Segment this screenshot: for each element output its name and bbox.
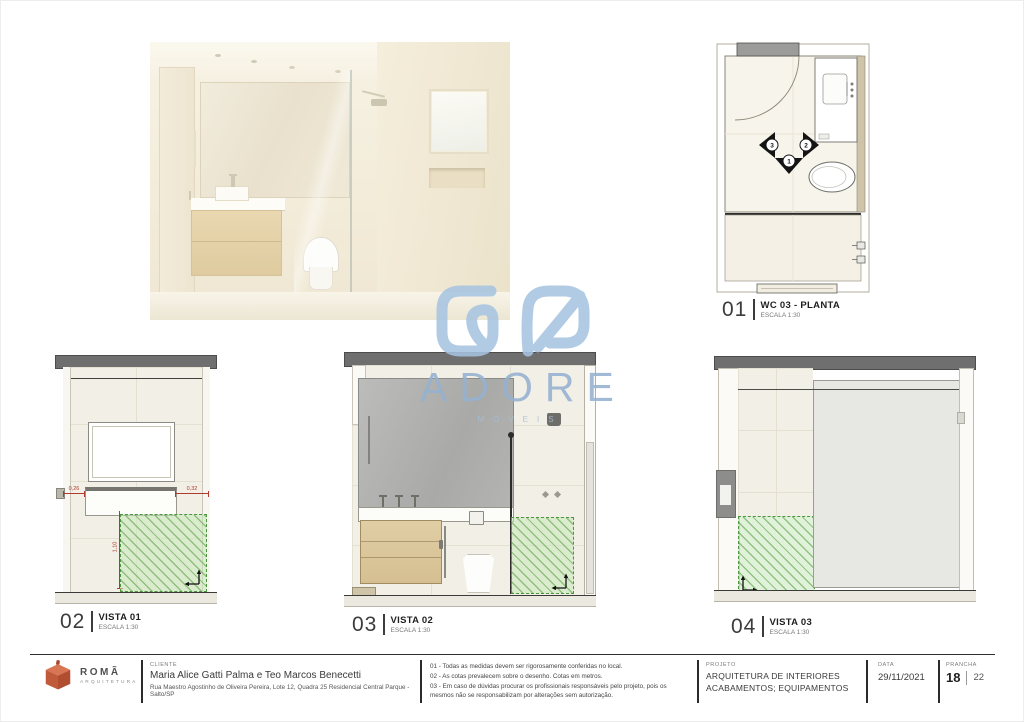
- label-divider: [91, 611, 92, 632]
- v2-flush-plate: [469, 511, 484, 525]
- titleblock-divider: [938, 660, 940, 703]
- v1-floor-slab: [55, 592, 217, 604]
- v1-mirror: [88, 422, 175, 482]
- roma-logo: ROMÃ ARQUITETURA: [44, 659, 137, 692]
- client-address: Rua Maestro Agostinho de Oliveira Pereir…: [150, 684, 412, 698]
- sheet-current: 18: [946, 670, 960, 685]
- marker-1: 1: [787, 159, 791, 166]
- roma-cube-icon: [44, 659, 72, 692]
- project-line: ACABAMENTOS; EQUIPAMENTOS: [706, 682, 856, 694]
- vista-02-drawing: [344, 350, 596, 606]
- hatch-arrow-icon: [183, 568, 201, 586]
- dim-label: 0,32: [175, 486, 209, 492]
- render-shower-head: [371, 99, 386, 106]
- render-vanity-cabinet: [191, 210, 281, 276]
- v3-right-wall: [959, 368, 974, 596]
- render-window: [429, 89, 489, 154]
- v2-shower-head: [547, 413, 561, 426]
- titleblock-top-rule: [30, 654, 995, 655]
- v2-floor-slab: [344, 595, 596, 607]
- v3-wall-fixture: [716, 470, 736, 518]
- hatch-arrow-icon: [550, 572, 568, 590]
- titleblock-date: DATA 29/11/2021: [878, 662, 925, 683]
- v1-dimension-left: 0,26: [63, 493, 85, 494]
- label-vista-01: 02 VISTA 01 ESCALA 1:30: [60, 611, 141, 632]
- vista-01-drawing: 0,26 0,32 1,10: [55, 352, 217, 604]
- v3-tiled-wall: [738, 368, 813, 516]
- plan-sink: [823, 74, 847, 104]
- dim-label: 0,26: [63, 486, 85, 492]
- render-glass-panel: [294, 70, 352, 292]
- v2-faucet: [414, 495, 416, 507]
- marker-3: 3: [770, 143, 774, 150]
- v2-faucet: [398, 495, 400, 507]
- view-title: WC 03 - PLANTA: [761, 300, 841, 311]
- view-scale: ESCALA 1:30: [391, 627, 434, 634]
- render-floor: [150, 292, 510, 320]
- sheet-separator: [966, 671, 967, 685]
- render-niche: [429, 168, 485, 187]
- dim-label: 1,10: [112, 541, 118, 552]
- titleblock-client: CLIENTE Maria Alice Gatti Palma e Teo Ma…: [150, 662, 412, 698]
- v2-mirror: [358, 378, 514, 509]
- label-divider: [762, 616, 763, 637]
- titleblock-divider: [141, 660, 143, 703]
- view-number: 01: [722, 299, 747, 320]
- v2-hygienic-shower: [439, 540, 443, 549]
- v1-ceiling-line: [69, 378, 203, 379]
- v3-ceiling-line: [738, 389, 966, 390]
- label-plan: 01 WC 03 - PLANTA ESCALA 1:30: [722, 299, 840, 320]
- v2-faucet: [382, 495, 384, 507]
- floor-plan-wc03: 1 2 3: [711, 40, 875, 298]
- marker-2: 2: [804, 143, 808, 150]
- project-line: ARQUITETURA DE INTERIORES: [706, 670, 856, 682]
- v3-glass-panel: [813, 380, 961, 588]
- label-vista-02: 03 VISTA 02 ESCALA 1:30: [352, 614, 433, 635]
- client-label: CLIENTE: [150, 662, 412, 668]
- titleblock-divider: [866, 660, 868, 703]
- label-divider: [753, 299, 754, 320]
- titleblock-divider: [697, 660, 699, 703]
- vista-03-drawing: [714, 352, 976, 604]
- v2-towel-bar: [368, 416, 370, 464]
- render-door: [159, 67, 195, 305]
- titleblock-notes: 01 - Todas as medidas devem ser rigorosa…: [430, 662, 688, 701]
- v1-left-wall: [63, 367, 71, 592]
- view-title: VISTA 03: [770, 617, 813, 628]
- view-scale: ESCALA 1:30: [99, 624, 142, 631]
- v2-vanity-cabinet: [360, 520, 442, 584]
- view-number: 02: [60, 611, 85, 632]
- view-scale: ESCALA 1:30: [770, 629, 813, 636]
- render-faucet: [231, 174, 235, 187]
- v2-hygienic-shower-hose: [444, 526, 446, 578]
- render-towel-bar: [194, 131, 196, 167]
- drawing-sheet: 1 2 3 0,26 0,32 1,10: [0, 0, 1024, 722]
- plan-right-wall: [857, 56, 865, 212]
- project-label: PROJETO: [706, 662, 856, 668]
- note-line: 03 - Em caso de dúvidas procurar os prof…: [430, 682, 688, 702]
- date-value: 29/11/2021: [878, 672, 925, 683]
- view-scale: ESCALA 1:30: [761, 312, 841, 319]
- plan-door-header: [737, 43, 799, 56]
- sheet-label: PRANCHA: [946, 662, 984, 668]
- titleblock-project: PROJETO ARQUITETURA DE INTERIORES ACABAM…: [706, 662, 856, 695]
- client-name: Maria Alice Gatti Palma e Teo Marcos Ben…: [150, 670, 412, 681]
- v1-dimension-right: 0,32: [175, 493, 209, 494]
- label-divider: [383, 614, 384, 635]
- titleblock-sheet-number: PRANCHA 18 22: [946, 662, 984, 685]
- view-number: 03: [352, 614, 377, 635]
- view-title: VISTA 01: [99, 612, 142, 623]
- v2-door-leaf: [586, 442, 594, 594]
- view-number: 04: [731, 616, 756, 637]
- note-line: 02 - As cotas prevalecem sobre o desenho…: [430, 672, 688, 682]
- v2-toilet: [462, 554, 495, 593]
- logo-subtitle: ARQUITETURA: [80, 680, 137, 685]
- view-title: VISTA 02: [391, 615, 434, 626]
- label-vista-03: 04 VISTA 03 ESCALA 1:30: [731, 616, 812, 637]
- note-line: 01 - Todas as medidas devem ser rigorosa…: [430, 662, 688, 672]
- render-sink: [215, 186, 249, 201]
- v3-wall-notch: [957, 412, 965, 424]
- v1-shelf: [85, 487, 177, 516]
- titleblock-divider: [420, 660, 422, 703]
- render-3d-bathroom: [150, 42, 510, 320]
- sheet-total: 22: [973, 672, 984, 683]
- logo-name: ROMÃ: [80, 667, 137, 678]
- date-label: DATA: [878, 662, 925, 668]
- v3-floor-slab: [714, 590, 976, 602]
- render-glass-edge: [350, 70, 352, 292]
